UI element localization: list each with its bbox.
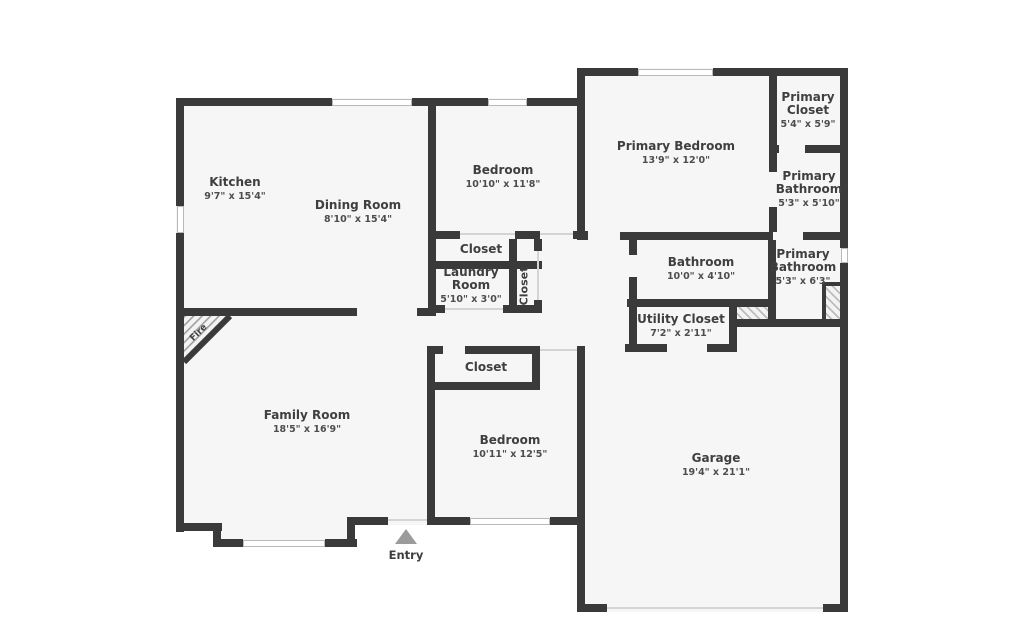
room-name: Bathroom	[776, 183, 842, 196]
room-label-bottom-closet: Closet	[465, 361, 507, 374]
room-label-family-room: Family Room 18'5" x 16'9"	[264, 409, 351, 436]
opening	[540, 233, 573, 235]
floor-plan: Fire	[0, 0, 1024, 628]
wall	[629, 277, 637, 352]
window	[332, 99, 412, 106]
wall	[823, 604, 848, 612]
room-name: Kitchen	[204, 176, 266, 189]
room-name: Closet	[460, 243, 502, 256]
wall	[176, 98, 184, 206]
room-label-bathroom: Bathroom 10'0" x 4'10"	[667, 256, 735, 283]
room-name: Dining Room	[315, 199, 401, 212]
wall	[213, 539, 243, 547]
room-name: Bathroom	[770, 261, 836, 274]
wall	[503, 305, 542, 313]
room-dims: 18'5" x 16'9"	[264, 423, 351, 436]
wall	[347, 517, 388, 525]
room-name: Garage	[682, 452, 750, 465]
room-label-bedroom-top: Bedroom 10'10" x 11'8"	[466, 164, 541, 191]
room-name: Bedroom	[473, 434, 548, 447]
wall	[428, 98, 436, 316]
entry-opening	[388, 519, 427, 521]
wall	[769, 207, 777, 232]
wall	[840, 263, 848, 612]
room-name: Closet	[465, 361, 507, 374]
room-name: Primary Bedroom	[617, 140, 735, 153]
wall	[805, 145, 848, 153]
hatch-strip	[733, 307, 768, 319]
room-label-vertical-closet: Closet	[518, 267, 531, 306]
room-label-hall-closet: Closet	[460, 243, 502, 256]
window	[638, 69, 713, 76]
opening	[445, 308, 503, 310]
room-label-primary-bedroom: Primary Bedroom 13'9" x 12'0"	[617, 140, 735, 167]
wall	[620, 232, 773, 240]
room-label-dining: Dining Room 8'10" x 15'4"	[315, 199, 401, 226]
room-label-garage: Garage 19'4" x 21'1"	[682, 452, 750, 479]
room-name: Bathroom	[667, 256, 735, 269]
wall	[428, 305, 445, 313]
room-dims: 5'10" x 3'0"	[440, 293, 502, 306]
wall	[577, 346, 585, 612]
window	[177, 206, 184, 233]
wall	[769, 145, 779, 153]
fireplace-icon	[184, 316, 236, 368]
garage-door-opening	[607, 607, 823, 609]
wall	[534, 239, 542, 251]
room-name: Closet	[781, 104, 836, 117]
wall	[427, 346, 443, 354]
wall	[577, 98, 585, 239]
wall	[176, 308, 357, 316]
room-dims: 8'10" x 15'4"	[315, 213, 401, 226]
wall	[803, 232, 848, 240]
wall	[427, 517, 470, 525]
room-label-utility-closet: Utility Closet 7'2" x 2'11"	[637, 313, 725, 340]
wall	[713, 68, 848, 76]
window	[243, 540, 325, 547]
room-dims: 19'4" x 21'1"	[682, 466, 750, 479]
room-label-primary-closet: Primary Closet 5'4" x 5'9"	[781, 91, 836, 131]
opening	[540, 349, 577, 351]
room-label-kitchen: Kitchen 9'7" x 15'4"	[204, 176, 266, 203]
room-dims: 10'10" x 11'8"	[466, 178, 541, 191]
wall	[515, 231, 540, 239]
room-label-primary-bathroom-upper: Primary Bathroom 5'3" x 5'10"	[776, 170, 842, 210]
entry-label: Entry	[389, 548, 424, 562]
entry-arrow-icon	[395, 529, 417, 544]
window	[470, 518, 550, 525]
room-name: Bedroom	[466, 164, 541, 177]
room-dims: 10'11" x 12'5"	[473, 448, 548, 461]
wall	[733, 319, 848, 327]
wall	[577, 68, 638, 76]
wall	[577, 604, 607, 612]
wall	[769, 76, 777, 148]
window	[488, 99, 527, 106]
room-name: Family Room	[264, 409, 351, 422]
room-dims: 9'7" x 15'4"	[204, 190, 266, 203]
room-name: Room	[440, 279, 502, 292]
room-dims: 10'0" x 4'10"	[667, 270, 735, 283]
room-label-laundry: Laundry Room 5'10" x 3'0"	[440, 266, 502, 306]
room-dims: 5'3" x 6'3"	[770, 275, 836, 288]
room-dims: 13'9" x 12'0"	[617, 154, 735, 167]
wall	[840, 68, 848, 248]
wall	[465, 346, 540, 354]
wall	[427, 346, 435, 525]
wall	[176, 98, 332, 106]
wall	[436, 231, 460, 239]
wall	[625, 344, 667, 352]
wall	[627, 299, 768, 307]
wall	[176, 233, 184, 532]
wall	[707, 344, 737, 352]
wall	[427, 382, 540, 390]
room-dims: 5'4" x 5'9"	[781, 118, 836, 131]
room-name: Utility Closet	[637, 313, 725, 326]
window	[841, 248, 848, 263]
room-label-primary-bathroom-lower: Primary Bathroom 5'3" x 6'3"	[770, 248, 836, 288]
wall	[509, 239, 517, 313]
opening	[537, 251, 539, 300]
room-dims: 5'3" x 5'10"	[776, 197, 842, 210]
wall	[629, 240, 637, 255]
wall	[436, 98, 488, 106]
room-dims: 7'2" x 2'11"	[637, 327, 725, 340]
room-label-bedroom-bottom: Bedroom 10'11" x 12'5"	[473, 434, 548, 461]
wall	[577, 232, 588, 240]
wall	[527, 98, 577, 106]
opening	[460, 233, 515, 235]
